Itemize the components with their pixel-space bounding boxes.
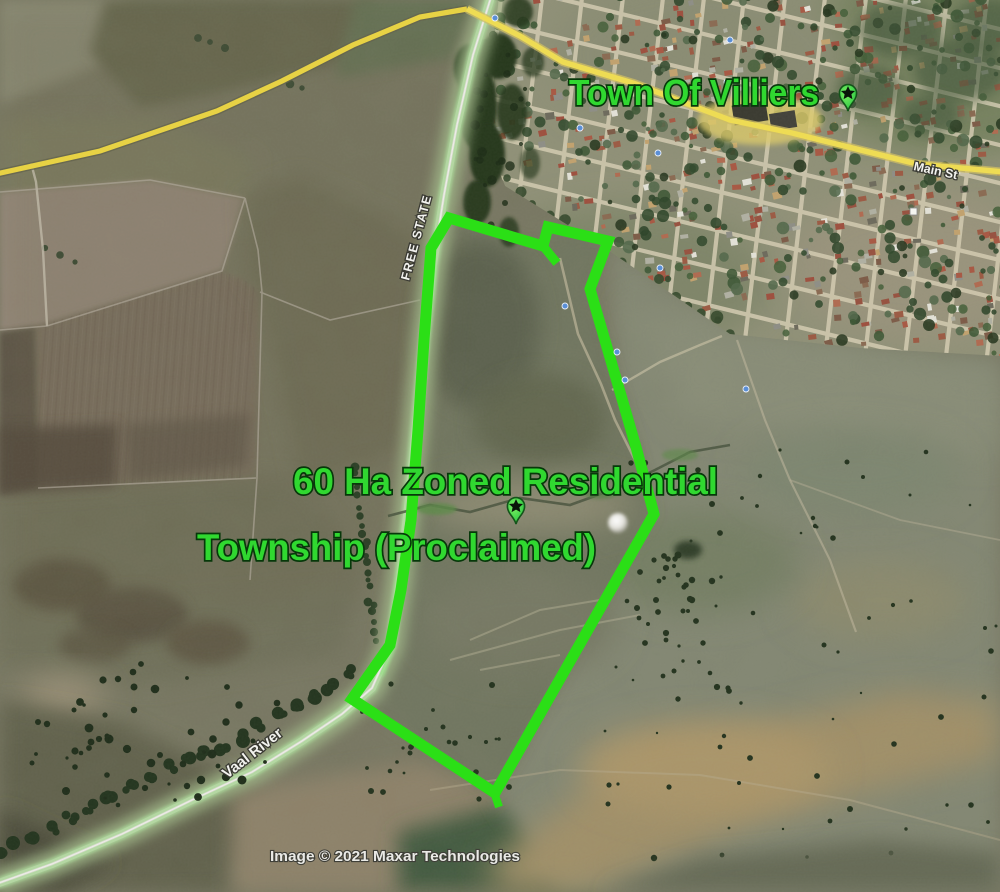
svg-text:Town Of Villiers: Town Of Villiers [569, 72, 819, 113]
svg-text:60 Ha Zoned Residential: 60 Ha Zoned Residential [293, 461, 718, 502]
svg-text:Image © 2021 Maxar Technologie: Image © 2021 Maxar Technologies [270, 848, 520, 865]
svg-text:Township (Proclaimed): Township (Proclaimed) [197, 527, 596, 568]
